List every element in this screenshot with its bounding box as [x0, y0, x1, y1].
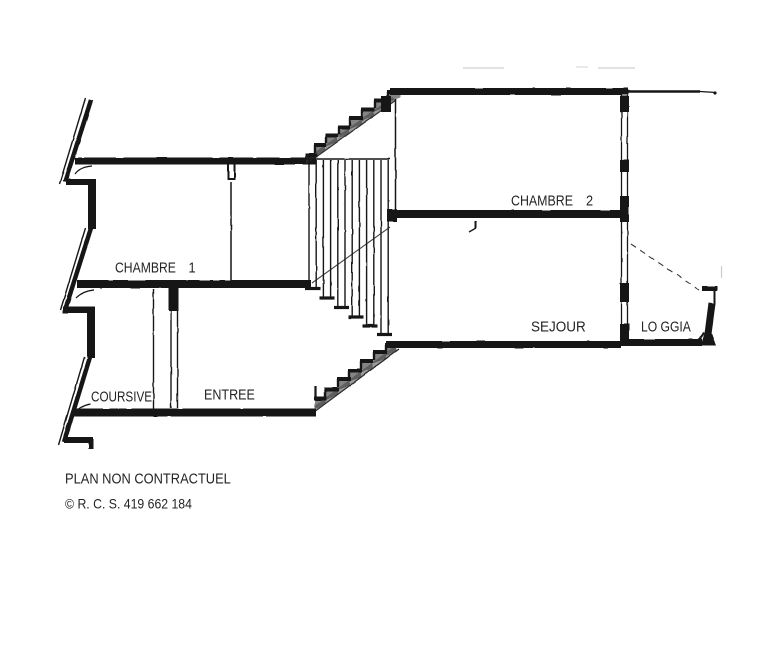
svg-text:1: 1: [189, 258, 196, 275]
svg-text:2: 2: [586, 191, 593, 208]
svg-text:© R. C. S. 419 662 184: © R. C. S. 419 662 184: [65, 496, 192, 512]
svg-text:LO GGIA: LO GGIA: [641, 318, 692, 334]
svg-text:CHAMBRE: CHAMBRE: [115, 259, 176, 275]
svg-text:CHAMBRE: CHAMBRE: [511, 192, 573, 208]
svg-text:SEJOUR: SEJOUR: [531, 319, 586, 336]
svg-text:PLAN NON CONTRACTUEL: PLAN NON CONTRACTUEL: [65, 470, 231, 487]
svg-text:COURSIVE: COURSIVE: [91, 388, 152, 405]
svg-text:ENTREE: ENTREE: [204, 385, 255, 402]
